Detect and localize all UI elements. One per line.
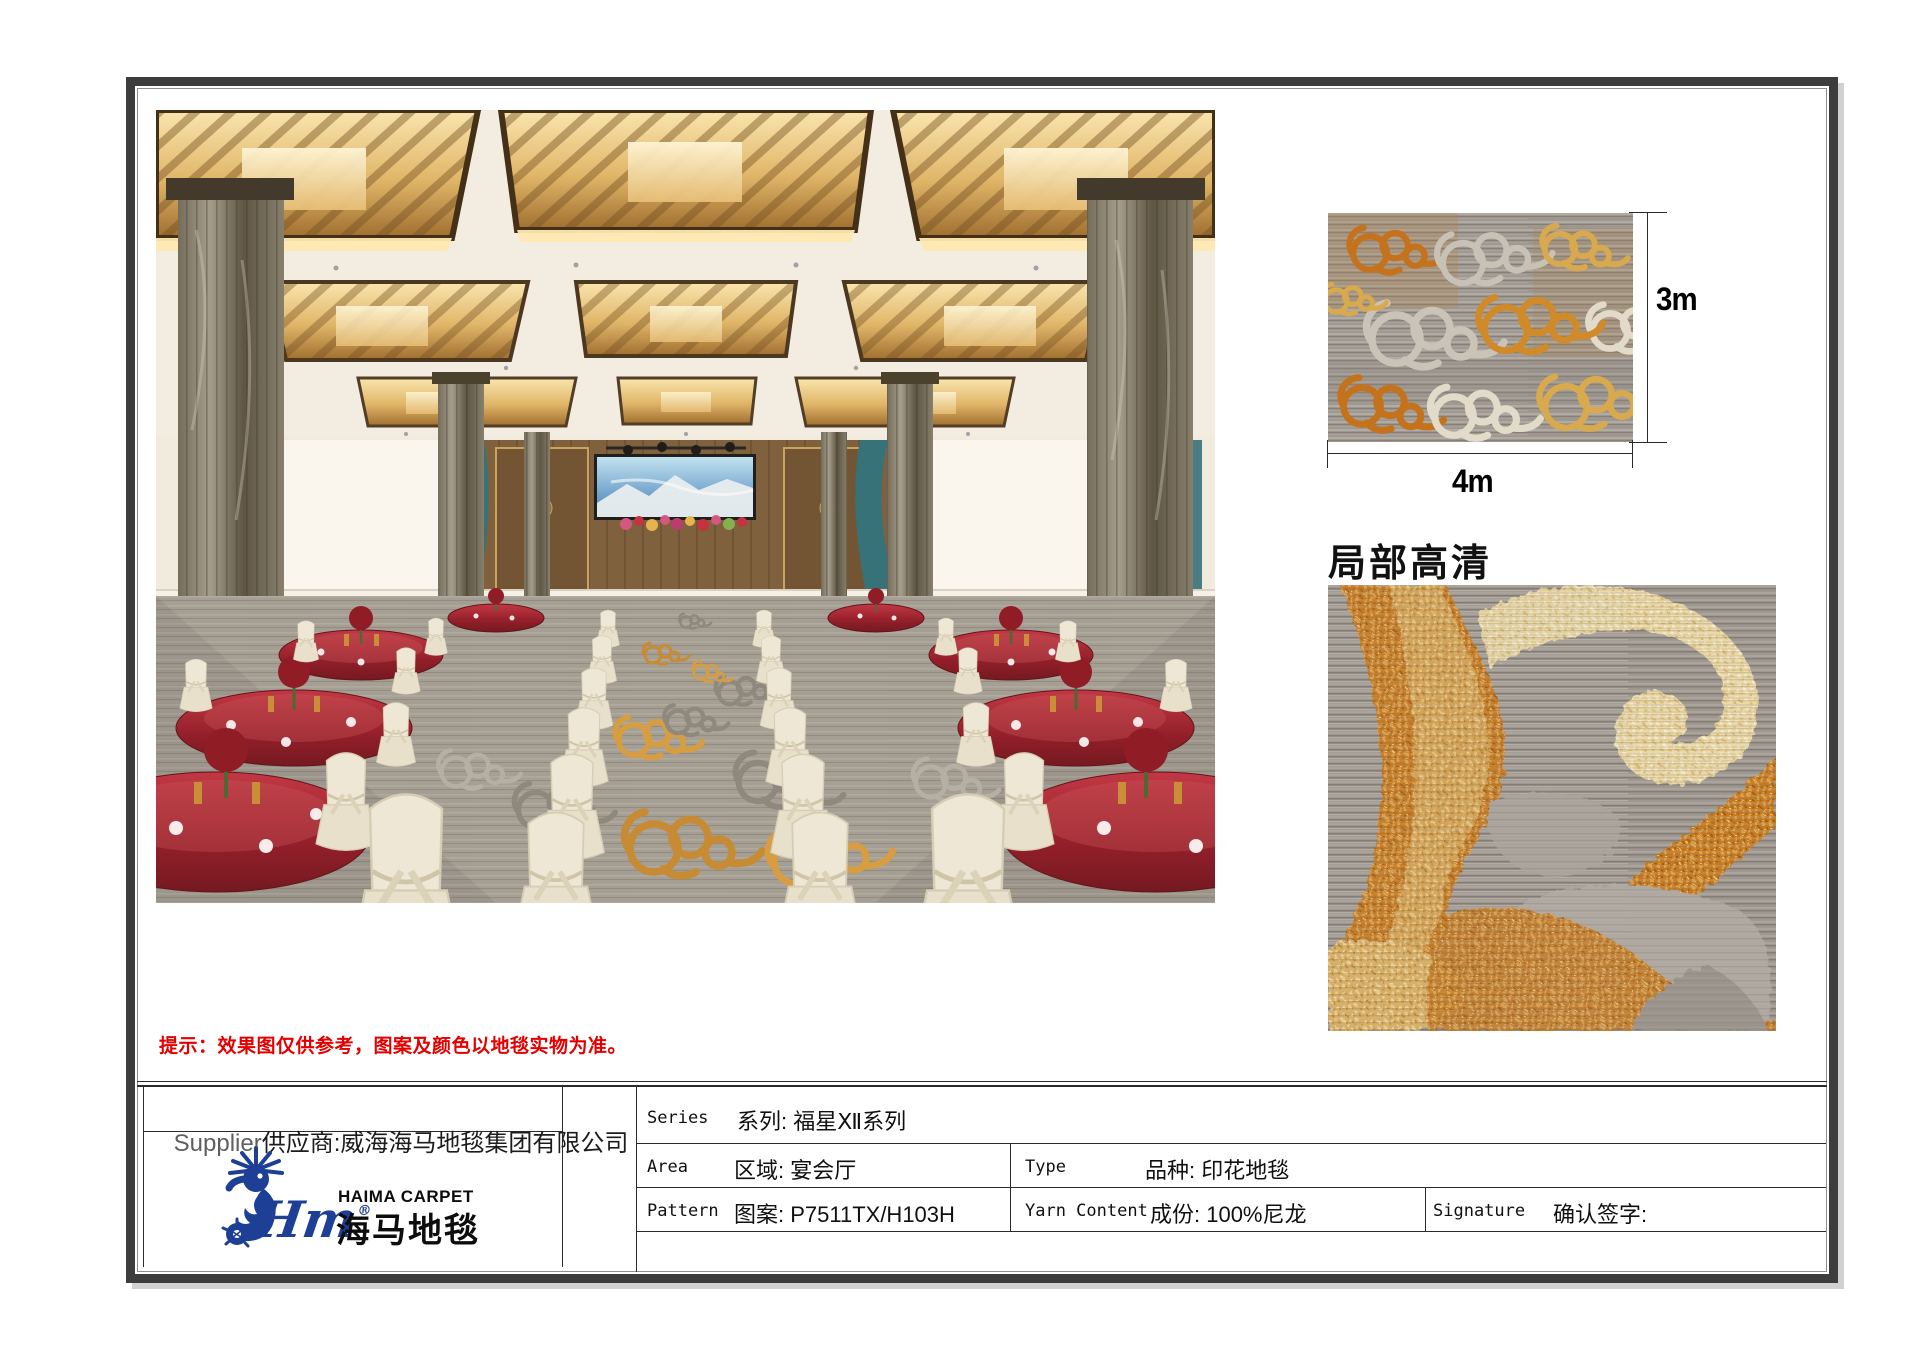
dim-tick xyxy=(1629,212,1667,213)
swatch-height-label: 3m xyxy=(1656,281,1697,318)
spec-table-left-border xyxy=(636,1087,637,1272)
haima-logo: Hm® HAIMA CARPET 海马地毯 xyxy=(220,1146,560,1256)
dim-tick xyxy=(1632,440,1633,468)
dim-tick xyxy=(1629,442,1667,443)
dim-line-horizontal xyxy=(1327,453,1633,454)
supplier-cell-left-border xyxy=(143,1087,144,1267)
signature-column-separator xyxy=(1425,1188,1426,1231)
table-top-line xyxy=(137,1081,1827,1082)
dim-tick xyxy=(1327,440,1328,468)
type-value: 品种: 印花地毯 xyxy=(1145,1153,1289,1185)
dim-line-vertical xyxy=(1647,212,1648,443)
signature-field: 确认签字: xyxy=(1553,1197,1647,1229)
detail-section-title: 局部高清 xyxy=(1328,532,1492,587)
type-label-en: Type xyxy=(1025,1157,1066,1177)
disclaimer-notice: 提示：效果图仅供参考，图案及颜色以地毯实物为准。 xyxy=(159,1031,627,1058)
spec-sheet-page: 3m 4m 局部高清 xyxy=(0,0,1920,1357)
type-column-separator xyxy=(1010,1143,1011,1231)
area-row-bottom-border xyxy=(636,1187,1826,1188)
pattern-value: 图案: P7511TX/H103H xyxy=(734,1197,955,1229)
area-value: 区域: 宴会厅 xyxy=(734,1153,856,1185)
table-top-line2 xyxy=(137,1085,1827,1087)
signature-label-en: Signature xyxy=(1433,1201,1525,1221)
ballroom-render-image xyxy=(156,110,1215,903)
yarn-content-value: 成份: 100%尼龙 xyxy=(1150,1197,1307,1229)
pattern-label-en: Pattern xyxy=(647,1201,719,1221)
area-label-en: Area xyxy=(647,1157,688,1177)
swatch-width-label: 4m xyxy=(1452,463,1493,500)
logo-brand-cn: 海马地毯 xyxy=(336,1203,480,1252)
carpet-detail-image xyxy=(1328,585,1776,1031)
carpet-swatch-image xyxy=(1328,213,1633,442)
series-row-bottom-border xyxy=(636,1143,1826,1144)
yarn-content-label-en: Yarn Content xyxy=(1025,1201,1148,1221)
series-label-en: Series xyxy=(647,1108,708,1128)
pattern-row-bottom-border xyxy=(636,1231,1826,1232)
series-value: 系列: 福星Ⅻ系列 xyxy=(737,1104,906,1136)
